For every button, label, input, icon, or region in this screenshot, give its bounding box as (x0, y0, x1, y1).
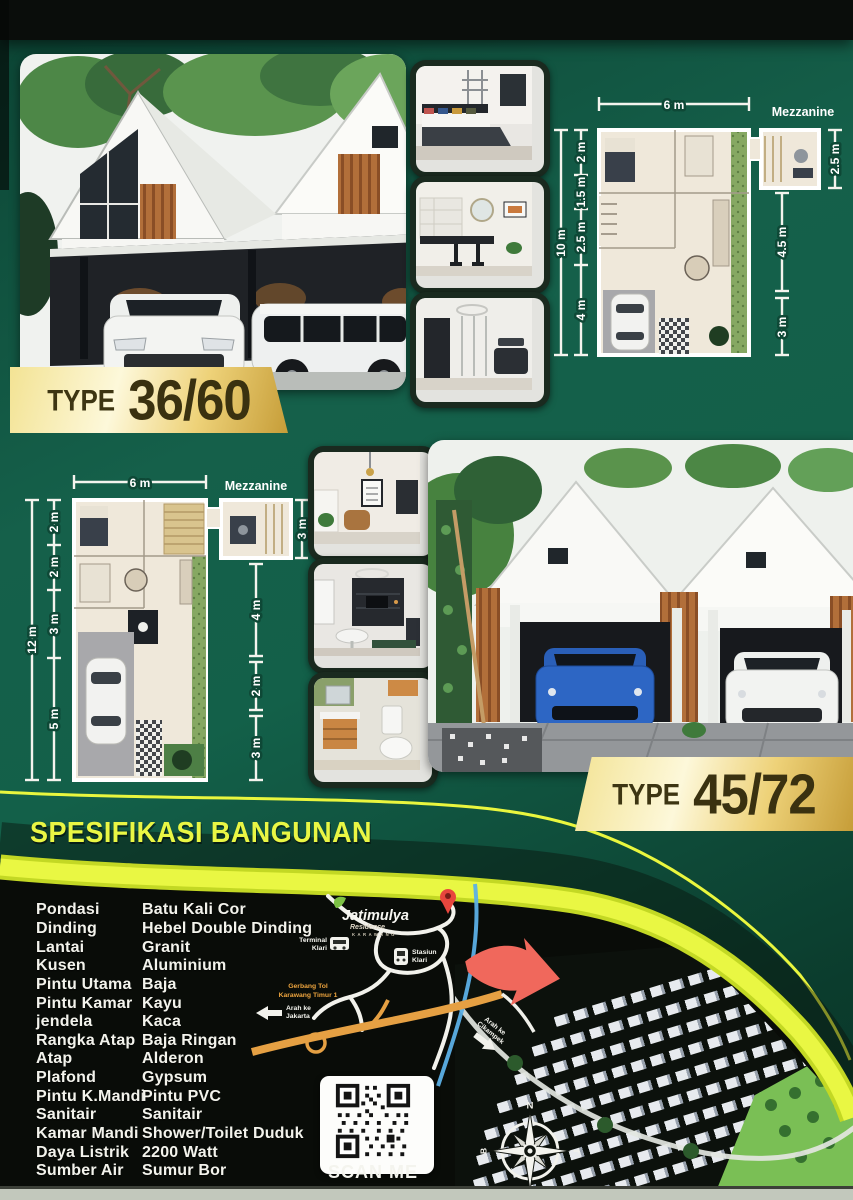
scan-me-label: SCAN ME (312, 1162, 434, 1183)
spec-value: Granit (142, 939, 190, 957)
toll-gate-label-2: Karawang Timur 1 (279, 992, 338, 999)
spec-row: Daya Listrik2200 Watt (36, 1143, 346, 1162)
to-cikampek-marker: Arah ke Cikampek (467, 1014, 510, 1057)
bottom-edge-strip (0, 1186, 853, 1200)
station-label-2: Klari (412, 957, 427, 964)
spec-value: Pintu PVC (142, 1088, 221, 1106)
spec-label: Atap (36, 1050, 142, 1068)
to-jakarta-marker: Arah ke Jakarta (256, 1005, 311, 1020)
spec-value: Batu Kali Cor (142, 901, 246, 919)
spec-value: Baja Ringan (142, 1032, 237, 1050)
spec-value: Shower/Toilet Duduk (142, 1125, 304, 1143)
spec-label: Lantai (36, 939, 142, 957)
badge-type-value: 45/72 (693, 762, 816, 827)
spec-value: Alderon (142, 1050, 204, 1068)
compass-north-label: N (527, 1101, 534, 1112)
spec-label: Sanitair (36, 1106, 142, 1124)
spec-label: Daya Listrik (36, 1144, 142, 1162)
spec-value: Kaca (142, 1013, 181, 1031)
spec-label: Plafond (36, 1069, 142, 1087)
to-jakarta-label-2: Jakarta (286, 1013, 310, 1020)
spec-label: Sumber Air (36, 1162, 142, 1180)
spec-value: Sumur Bor (142, 1162, 226, 1180)
terminal-label-2: Klari (312, 945, 327, 952)
spec-value: 2200 Watt (142, 1144, 218, 1162)
train-icon (394, 948, 408, 965)
arrow-left-icon (256, 1006, 282, 1020)
badge-type-prefix: TYPE (612, 776, 680, 812)
spec-label: jendela (36, 1013, 142, 1031)
compass-east-label: T (571, 1148, 581, 1154)
spec-label: Pintu Utama (36, 976, 142, 994)
spec-row: Kamar MandiShower/Toilet Duduk (36, 1125, 346, 1144)
spec-label: Pintu Kamar (36, 995, 142, 1013)
spec-value: Aluminium (142, 957, 226, 975)
toll-gate-label-1: Gerbang Tol (288, 983, 328, 990)
map-logo-name: Jatimulya (342, 908, 409, 924)
spec-label: Pondasi (36, 901, 142, 919)
compass-rose: N S B T (474, 1100, 586, 1200)
spec-row: SanitairSanitair (36, 1106, 346, 1125)
to-jakarta-label-1: Arah ke (286, 1005, 311, 1012)
red-arrow-icon (453, 926, 571, 1022)
spec-label: Dinding (36, 920, 142, 938)
spec-value: Kayu (142, 995, 182, 1013)
spec-label: Kamar Mandi (36, 1125, 142, 1143)
compass-west-label: B (479, 1148, 489, 1154)
station-label-1: Stasiun (412, 949, 437, 956)
terminal-klari-marker: Terminal Klari (299, 937, 349, 952)
qr-code (320, 1076, 434, 1174)
spec-label: Pintu K.Mandi (36, 1088, 142, 1106)
stasiun-klari-marker: Stasiun Klari (394, 948, 437, 965)
badge-type-45-72: TYPE 45/72 (575, 757, 853, 831)
spec-label: Kusen (36, 957, 142, 975)
spec-value: Baja (142, 976, 177, 994)
spec-label: Rangka Atap (36, 1032, 142, 1050)
terminal-label-1: Terminal (299, 937, 327, 944)
spec-value: Sanitair (142, 1106, 202, 1124)
spec-row: Sumber AirSumur Bor (36, 1162, 346, 1181)
specifications-title: SPESIFIKASI BANGUNAN (30, 817, 372, 850)
flyer-page: 6 m Mezzanine 10 m 2 m 1.5 m 2.5 m 4 m 2… (0, 0, 853, 1200)
qr-pattern (324, 1080, 422, 1162)
leaf-icon (334, 897, 346, 908)
spec-value: Gypsum (142, 1069, 207, 1087)
map-logo-city: KARAWANG (352, 932, 397, 937)
map-logo-sub: Residence (350, 924, 385, 931)
